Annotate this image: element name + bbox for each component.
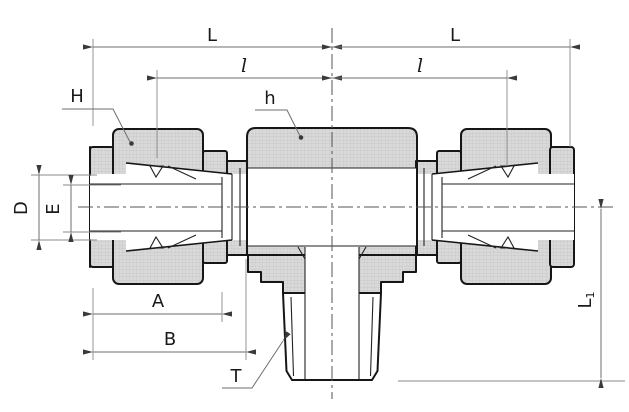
label-B: B xyxy=(164,329,176,350)
drawing-canvas: L L l l H h D E A B T L1 xyxy=(0,0,629,412)
label-l-left: l xyxy=(241,55,247,77)
label-l-right: l xyxy=(417,55,423,77)
dim-L-left xyxy=(93,39,332,126)
label-L1: L1 xyxy=(575,291,597,308)
label-H: H xyxy=(70,86,84,107)
label-A: A xyxy=(152,291,165,312)
fitting-section-drawing: L L l l H h D E A B T L1 xyxy=(0,0,629,412)
label-L-left: L xyxy=(207,25,217,46)
label-h: h xyxy=(264,88,275,109)
label-L-right: L xyxy=(450,25,460,46)
label-D: D xyxy=(11,201,32,215)
label-T: T xyxy=(230,366,243,387)
label-E: E xyxy=(43,203,64,214)
